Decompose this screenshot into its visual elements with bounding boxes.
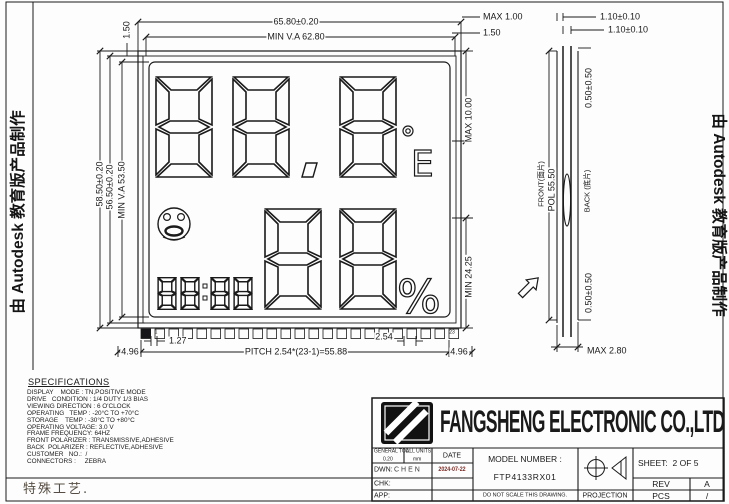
general-tol-value: 0.20 <box>383 457 393 462</box>
side-view <box>557 46 578 337</box>
pol-mark <box>563 174 570 226</box>
lcd-digits-top: E <box>156 77 434 185</box>
dim-height-label: 58.50±0.20 <box>96 161 105 208</box>
dim-offset-left-label: 1.50 <box>123 20 132 40</box>
pin-5 <box>197 329 207 339</box>
degree-icon <box>403 126 413 136</box>
app-label: APP: <box>374 493 390 500</box>
date-header: DATE <box>443 453 461 460</box>
pin-19 <box>393 329 403 339</box>
sheet-value: 2 OF 5 <box>673 458 699 468</box>
sheet-label: SHEET: <box>638 458 668 468</box>
pin-10 <box>267 329 277 339</box>
datasheet-page: { "watermarks": { "left": "由 Autodesk 教育… <box>0 0 729 504</box>
pin-7 <box>225 329 235 339</box>
dwn-value: CHEN <box>394 467 422 474</box>
rev-value: A <box>704 480 710 489</box>
pin-20 <box>407 329 417 339</box>
dim-glass1-label: 1.10±0.10 <box>599 13 641 22</box>
dim-pin-right-margin-label: 4.96 <box>449 348 469 357</box>
dim-width-label: 65.80±0.20 <box>273 18 320 27</box>
chk-label: CHK: <box>374 481 391 488</box>
company-name: FANGSHENG ELECTRONIC CO.,LTD <box>440 405 724 441</box>
viewing-direction-arrow-icon <box>516 273 544 301</box>
dim-pin-pitch-label: 2.54 <box>374 333 394 342</box>
model-number-label: MODEL NUMBER : <box>488 455 562 464</box>
units-label: ALL UNITS: <box>406 450 433 455</box>
seven-segment-digit-small <box>234 278 252 310</box>
rev-label: REV <box>652 480 669 489</box>
specifications-title: SPECIFICATIONS <box>28 377 110 387</box>
pin-first-label: 1 <box>155 331 158 336</box>
dim-va-height-label: MIN V.A 53.50 <box>118 160 127 219</box>
pin-15 <box>337 329 347 339</box>
pin-22 <box>435 329 445 339</box>
colon-dot <box>203 284 207 288</box>
pin-21 <box>421 329 431 339</box>
lcd-digits-bottom: % <box>265 209 441 324</box>
temp-unit-glyph: E <box>411 144 434 185</box>
seven-segment-digit-small <box>181 278 199 310</box>
special-process-note: 特殊工艺. <box>23 478 89 497</box>
dim-top-right2-label: 1.50 <box>482 29 502 38</box>
pin-row <box>141 329 459 339</box>
dim-digit-top-label: MAX 10.00 <box>465 97 474 144</box>
spec-row: CONNECTORS : ZEBRA <box>27 459 174 466</box>
seven-segment-digit-small <box>158 278 176 310</box>
units-value: mm <box>413 457 421 462</box>
seven-segment-digit <box>340 77 396 177</box>
general-tol-label: GENERAL TOL: <box>374 450 410 455</box>
date-value: 2024-07-22 <box>438 467 465 474</box>
projection-symbol-icon <box>584 456 626 480</box>
seven-segment-digit <box>233 77 289 177</box>
projection-label: PROJECTION <box>582 493 627 500</box>
dim-pol-offset-top-label: 0.50±0.50 <box>585 67 594 109</box>
no-scale-note: DO NOT SCALE THIS DRAWING. <box>483 493 567 499</box>
pcs-value: / <box>706 492 708 501</box>
dwn-label: DWN: <box>374 467 393 474</box>
smiley-icon <box>158 208 190 240</box>
pin-17 <box>365 329 375 339</box>
back-polarizer-label: BACK (底片) <box>583 169 591 214</box>
pcs-label: PCS <box>652 492 669 501</box>
autodesk-watermark-left: 由 Autodesk 教育版产品制作 <box>6 110 28 313</box>
pin-11 <box>281 329 291 339</box>
pin-14 <box>323 329 333 339</box>
dim-digit-bottom-label: MIN 24.25 <box>465 255 474 299</box>
colon-dot <box>203 296 207 300</box>
pin-8 <box>239 329 249 339</box>
dim-height2-label: 56.50±0.20 <box>106 164 115 211</box>
model-number-value: FTP4133RX01 <box>494 473 557 482</box>
pin-6 <box>211 329 221 339</box>
pin-16 <box>351 329 361 339</box>
seven-segment-digit-small <box>211 278 229 310</box>
decimal-point <box>302 163 317 177</box>
percent-symbol: % <box>397 270 441 324</box>
pin-9 <box>253 329 263 339</box>
seven-segment-digit <box>156 77 212 177</box>
sheet-info: SHEET: 2 OF 5 <box>638 459 698 468</box>
specifications-list: DISPLAY MODE : TN,POSITIVE MODE DRIVE CO… <box>27 390 174 466</box>
front-polarizer-label: FRONT(面片) <box>537 160 545 208</box>
pin-last-label: 23 <box>449 331 455 336</box>
pol-length-label: POL 55.50 <box>548 168 557 213</box>
company-logo-icon <box>381 400 433 445</box>
dim-max-top-right-label: MAX 1.00 <box>482 13 524 22</box>
autodesk-watermark-right: 由 Autodesk 教育版产品制作 <box>709 113 729 316</box>
dim-pitch-label: PITCH 2.54*(23-1)=55.88 <box>244 348 348 357</box>
dim-pin-left-margin-label: 4.96 <box>120 348 140 357</box>
lcd-clock-digits <box>158 278 252 310</box>
seven-segment-digit <box>265 209 321 309</box>
dim-pol-offset-bottom-label: 0.50±0.50 <box>585 272 594 314</box>
pin-12 <box>295 329 305 339</box>
dim-total-thickness-label: MAX 2.80 <box>586 347 628 356</box>
pin-1 <box>141 329 151 339</box>
dim-va-width-label: MIN V.A 62.80 <box>266 33 325 42</box>
seven-segment-digit <box>340 209 396 309</box>
dim-pin-gap-label: 1.27 <box>168 337 188 346</box>
pin-13 <box>309 329 319 339</box>
dim-glass2-label: 1.10±0.10 <box>607 26 649 35</box>
